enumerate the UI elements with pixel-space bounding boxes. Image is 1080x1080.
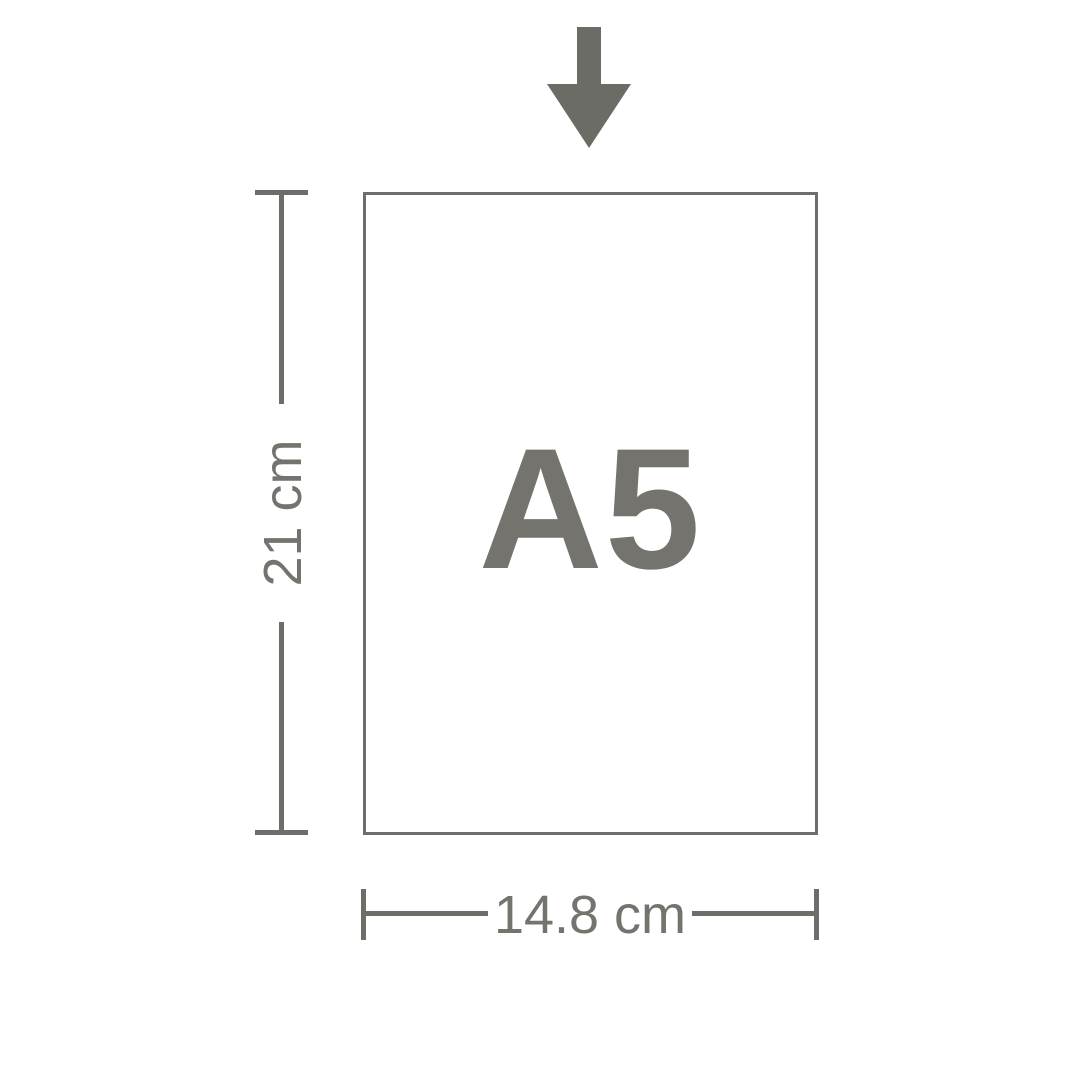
paper-size-diagram: A5 21 cm 14.8 cm xyxy=(0,0,1080,1080)
arrow-down-head xyxy=(547,84,631,148)
height-dimension-label: 21 cm xyxy=(256,439,310,586)
arrow-down-stem xyxy=(577,27,601,85)
paper-size-label: A5 xyxy=(479,423,703,605)
width-dimension-right-line xyxy=(692,911,816,916)
height-dimension-upper-line xyxy=(279,192,284,404)
width-dimension-label: 14.8 cm xyxy=(494,888,686,942)
paper-outline: A5 xyxy=(363,192,818,835)
height-dimension-lower-line xyxy=(279,622,284,833)
height-dimension-bottom-tick xyxy=(255,830,308,835)
width-dimension-left-line xyxy=(364,911,488,916)
width-dimension-right-tick xyxy=(814,889,819,940)
